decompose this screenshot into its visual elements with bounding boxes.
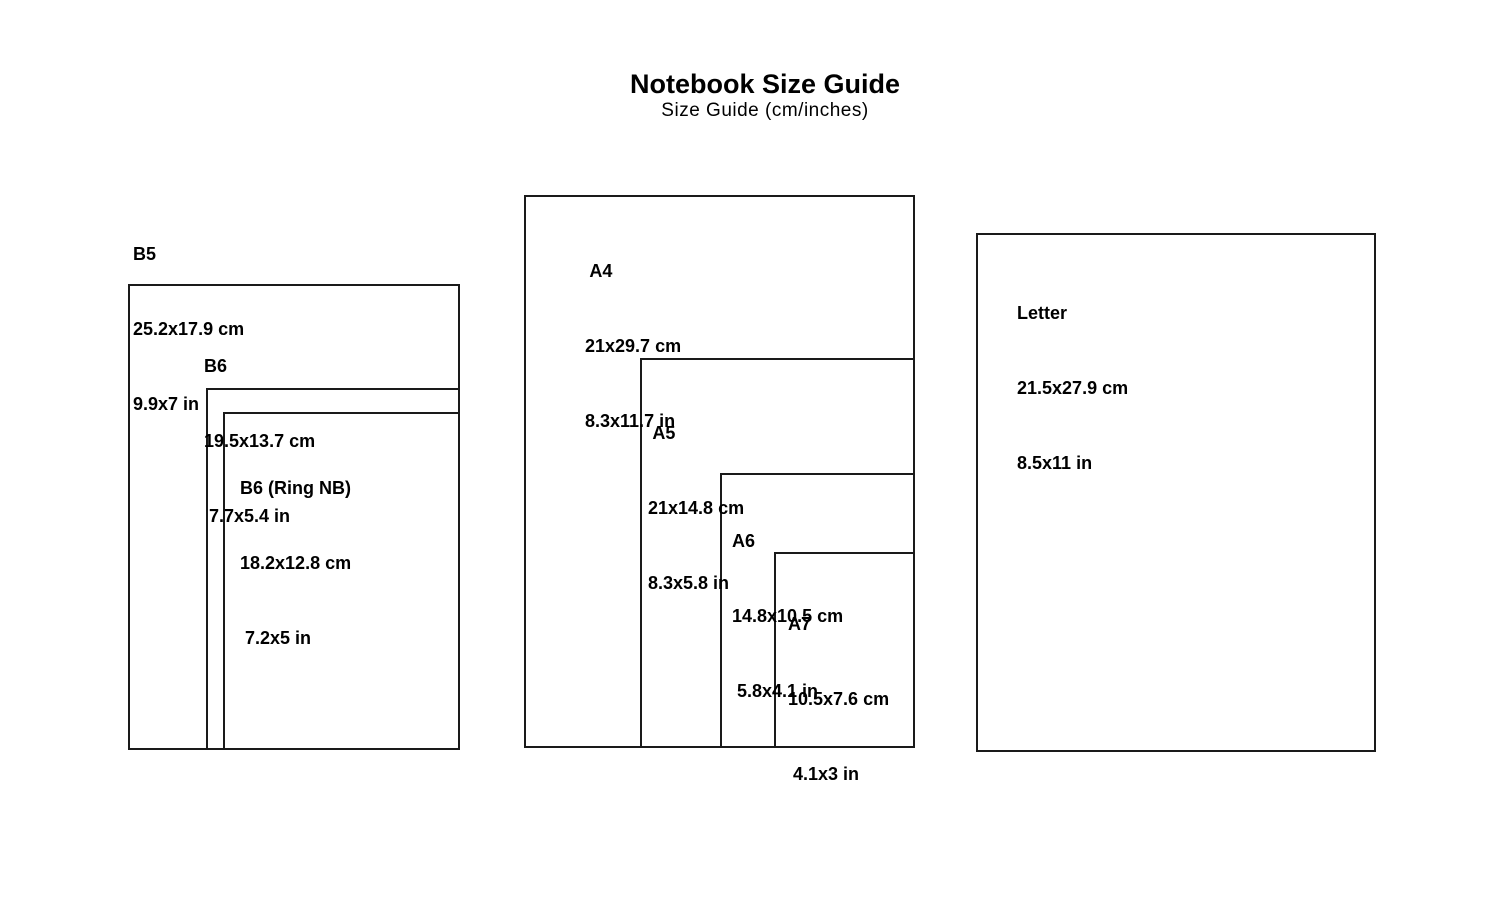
size-label-b6-ring: B6 (Ring NB) 18.2x12.8 cm 7.2x5 in	[240, 426, 351, 701]
size-cm-label: 21x29.7 cm	[585, 334, 681, 359]
size-label-letter: Letter 21.5x27.9 cm 8.5x11 in	[1017, 251, 1128, 526]
page-title: Notebook Size Guide	[630, 69, 900, 100]
size-cm-label: 10.5x7.6 cm	[788, 687, 889, 712]
size-name-label: A5	[648, 421, 744, 446]
size-name-label: B6 (Ring NB)	[240, 476, 351, 501]
size-in-label: 8.3x5.8 in	[648, 571, 744, 596]
notebook-size-guide-diagram: Notebook Size Guide Size Guide (cm/inche…	[0, 0, 1500, 917]
size-name-label: A7	[788, 612, 889, 637]
size-cm-label: 21x14.8 cm	[648, 496, 744, 521]
size-name-label: B6	[204, 354, 315, 379]
size-cm-label: 21.5x27.9 cm	[1017, 376, 1128, 401]
size-name-label: B5	[133, 242, 244, 267]
size-name-label: A6	[732, 529, 843, 554]
size-in-label: 8.5x11 in	[1017, 451, 1128, 476]
size-name-label: Letter	[1017, 301, 1128, 326]
page-subtitle: Size Guide (cm/inches)	[661, 100, 868, 122]
size-label-a7: A7 10.5x7.6 cm 4.1x3 in	[788, 562, 889, 837]
size-name-label: A4	[585, 259, 681, 284]
size-label-a5: A5 21x14.8 cm 8.3x5.8 in	[648, 371, 744, 646]
size-cm-label: 18.2x12.8 cm	[240, 551, 351, 576]
size-in-label: 4.1x3 in	[788, 762, 889, 787]
size-in-label: 7.2x5 in	[240, 626, 351, 651]
